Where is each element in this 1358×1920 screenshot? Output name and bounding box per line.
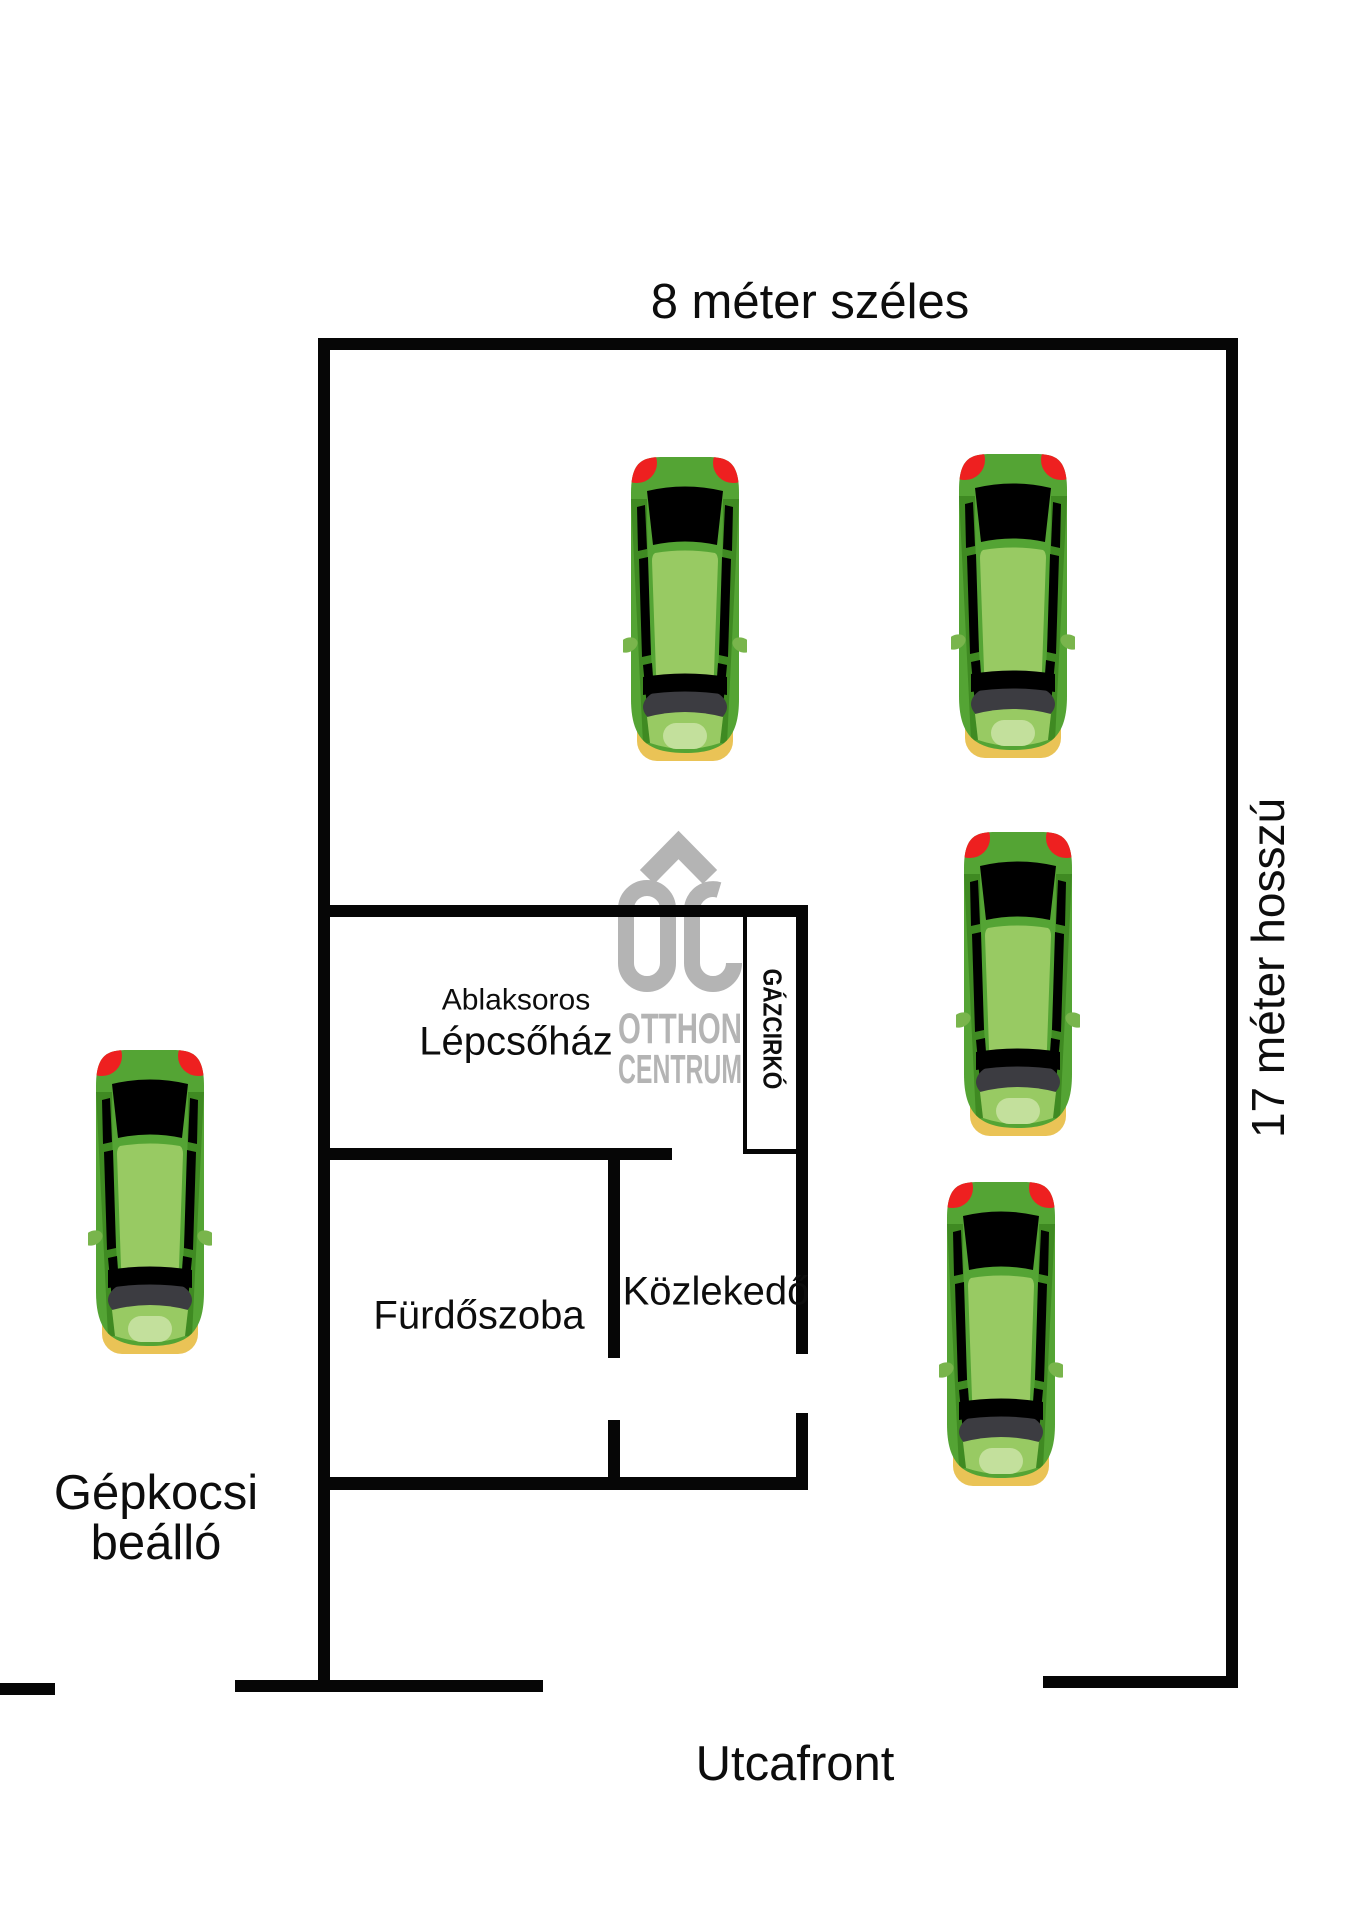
wall-shaft-left <box>743 917 747 1153</box>
wall-shaft-bottom <box>743 1149 801 1154</box>
street-front-label: Utcafront <box>696 1736 895 1792</box>
monogram-c-icon <box>692 889 734 984</box>
watermark-line2: CENTRUM <box>618 1046 742 1090</box>
hallway-label: Közlekedő <box>623 1270 810 1315</box>
bathroom-label: Fürdőszoba <box>373 1294 584 1339</box>
wall-street-stub <box>0 1683 55 1695</box>
carport-label-line2: beálló <box>54 1518 258 1568</box>
wall-lot-bottom-right <box>1043 1676 1238 1688</box>
roof-chevron-icon <box>647 845 710 877</box>
stairwell-room-label: Ablaksoros Lépcsőház <box>419 982 612 1065</box>
floor-plan: OTTHON CENTRUM 8 méter széles 17 méter h… <box>0 0 1358 1920</box>
car-icon <box>88 1042 212 1363</box>
monogram-o-icon <box>626 888 668 984</box>
car-icon <box>623 449 747 770</box>
wall-rooms-top <box>322 905 808 917</box>
car-icon <box>939 1174 1063 1495</box>
stairwell-room-label-line1: Ablaksoros <box>419 982 612 1019</box>
wall-divider-upper <box>608 1153 620 1358</box>
wall-lot-right <box>1226 338 1238 1688</box>
length-dimension-label: 17 méter hosszú <box>1241 798 1295 1138</box>
wall-street-left <box>235 1680 543 1692</box>
carport-label-line1: Gépkocsi <box>54 1468 258 1518</box>
wall-rooms-bottom <box>322 1477 808 1490</box>
wall-lot-top <box>322 338 1238 350</box>
car-icon <box>951 446 1075 767</box>
car-icon <box>956 824 1080 1145</box>
stairwell-room-label-line2: Lépcsőház <box>419 1019 612 1065</box>
gas-heater-label: GÁZCIRKÓ <box>757 969 788 1090</box>
otthon-centrum-watermark-icon: OTTHON CENTRUM <box>612 828 752 1090</box>
width-dimension-label: 8 méter széles <box>651 274 970 330</box>
carport-label: Gépkocsi beálló <box>54 1468 258 1568</box>
